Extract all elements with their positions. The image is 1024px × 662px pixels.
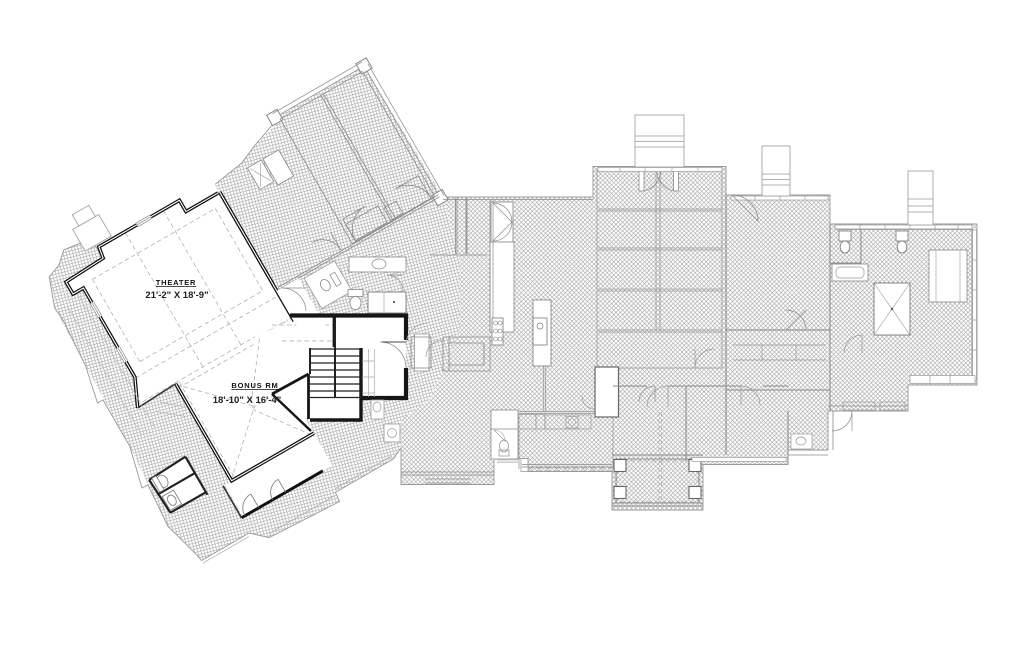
svg-text:BONUS RM: BONUS RM — [231, 381, 278, 390]
svg-text:THEATER: THEATER — [156, 278, 196, 287]
svg-text:21'-2" X 18'-9": 21'-2" X 18'-9" — [145, 290, 208, 301]
svg-text:18'-10" X 16'-4": 18'-10" X 16'-4" — [213, 395, 281, 406]
